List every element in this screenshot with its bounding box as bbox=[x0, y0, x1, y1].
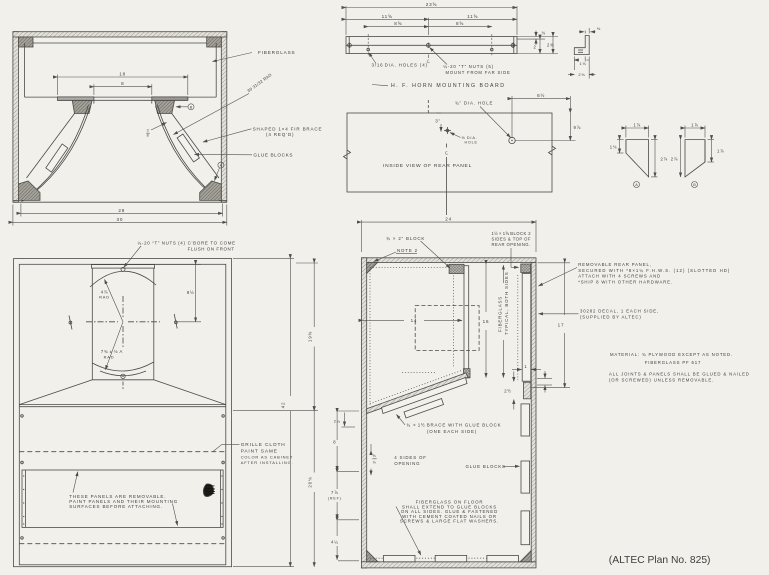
svg-text:1⅞: 1⅞ bbox=[717, 149, 725, 154]
svg-text:*SHIP 8 WITH OTHER HARDWARE.: *SHIP 8 WITH OTHER HARDWARE. bbox=[578, 279, 673, 284]
svg-text:(OR SCREWED) UNLESS REMOVABLE.: (OR SCREWED) UNLESS REMOVABLE. bbox=[609, 378, 714, 383]
svg-text:16: 16 bbox=[483, 319, 490, 324]
svg-text:REAR OPENING.: REAR OPENING. bbox=[492, 242, 531, 247]
svg-text:30282 DECAL, 1 EACH SIDE,: 30282 DECAL, 1 EACH SIDE, bbox=[580, 309, 659, 314]
svg-text:H. F. HORN MOUNTING BOARD: H. F. HORN MOUNTING BOARD bbox=[391, 83, 505, 89]
svg-text:1⅞: 1⅞ bbox=[691, 123, 699, 128]
svg-text:⅜: ⅜ bbox=[597, 26, 601, 31]
svg-text:GRILLE CLOTH: GRILLE CLOTH bbox=[241, 442, 286, 448]
svg-text:FIBERGLASS: FIBERGLASS bbox=[498, 296, 503, 332]
svg-text:(SUPPLIED BY ALTEC): (SUPPLIED BY ALTEC) bbox=[580, 314, 642, 319]
svg-text:FLUSH ON FRONT: FLUSH ON FRONT bbox=[188, 247, 235, 252]
svg-text:⅛: ⅛ bbox=[542, 31, 546, 36]
svg-text:¾ × 2” BLOCK: ¾ × 2” BLOCK bbox=[386, 236, 425, 241]
svg-text:MOUNT FROM FAR SIDE: MOUNT FROM FAR SIDE bbox=[446, 70, 511, 75]
svg-text:2⅜: 2⅜ bbox=[547, 43, 555, 48]
svg-text:8⅝: 8⅝ bbox=[456, 21, 464, 26]
svg-text:⅞: ⅞ bbox=[372, 461, 376, 465]
svg-text:4¼: 4¼ bbox=[331, 540, 339, 545]
svg-text:7⅞: 7⅞ bbox=[331, 490, 339, 495]
svg-text:SIDES & TOP OF: SIDES & TOP OF bbox=[492, 237, 531, 242]
svg-text:8: 8 bbox=[147, 134, 150, 138]
svg-text:½ DIA.: ½ DIA. bbox=[462, 135, 478, 140]
svg-text:4 SIDES OF: 4 SIDES OF bbox=[394, 455, 427, 460]
svg-text:1⅛: 1⅛ bbox=[579, 61, 586, 66]
svg-text:SECURED WITH *8×1¼ F.H.W.S. (1: SECURED WITH *8×1¼ F.H.W.S. (12) (SLOTTE… bbox=[578, 268, 730, 273]
svg-text:GLUE BLOCKS: GLUE BLOCKS bbox=[253, 153, 293, 158]
svg-text:1⅞: 1⅞ bbox=[633, 123, 641, 128]
svg-text:¼-20 “T” NUTS (4) C’BORE TO CO: ¼-20 “T” NUTS (4) C’BORE TO COME bbox=[138, 240, 236, 245]
svg-text:(4 REQ’D): (4 REQ’D) bbox=[266, 132, 294, 137]
svg-text:8⅝: 8⅝ bbox=[394, 21, 402, 26]
svg-text:28: 28 bbox=[118, 208, 125, 213]
svg-text:HOLE: HOLE bbox=[465, 141, 478, 145]
svg-text:1: 1 bbox=[524, 364, 527, 369]
svg-text:2: 2 bbox=[534, 45, 537, 50]
svg-text:FIBERGLASS: FIBERGLASS bbox=[258, 50, 295, 55]
svg-text:(REF): (REF) bbox=[328, 497, 342, 501]
svg-text:2⅞: 2⅞ bbox=[661, 157, 669, 162]
svg-text:17: 17 bbox=[558, 323, 565, 328]
svg-text:B: B bbox=[693, 183, 696, 187]
svg-text:¾ × 1½ BRACE WITH GLUE BLOCK: ¾ × 1½ BRACE WITH GLUE BLOCK bbox=[407, 423, 502, 428]
svg-text:2⅛: 2⅛ bbox=[578, 72, 585, 77]
svg-text:REMOVABLE REAR PANEL,: REMOVABLE REAR PANEL, bbox=[578, 262, 652, 267]
svg-text:A: A bbox=[220, 164, 223, 168]
svg-text:A: A bbox=[635, 183, 638, 187]
svg-text:18: 18 bbox=[119, 71, 126, 76]
svg-text:19⅜: 19⅜ bbox=[308, 331, 313, 342]
svg-text:¼-20 “T” NUTS (5): ¼-20 “T” NUTS (5) bbox=[443, 64, 494, 69]
svg-text:B: B bbox=[190, 105, 193, 109]
svg-text:6½: 6½ bbox=[537, 92, 545, 98]
svg-text:ATTACH WITH 4 SCREWS AND: ATTACH WITH 4 SCREWS AND bbox=[578, 274, 661, 279]
svg-text:SCREWS & LARGE FLAT WASHERS.: SCREWS & LARGE FLAT WASHERS. bbox=[400, 519, 499, 524]
svg-text:7¾ ± ⅛ A: 7¾ ± ⅛ A bbox=[101, 349, 123, 354]
svg-text:INSIDE VIEW OF REAR PANEL: INSIDE VIEW OF REAR PANEL bbox=[383, 163, 472, 169]
svg-text:AFTER INSTALLING.: AFTER INSTALLING. bbox=[241, 460, 294, 465]
svg-text:NOTE 2: NOTE 2 bbox=[397, 248, 418, 253]
svg-text:30: 30 bbox=[116, 217, 123, 222]
svg-text:​3/16 DIA. HOLES (4): ​3/16 DIA. HOLES (4) bbox=[372, 63, 428, 68]
svg-text:TYPICAL, BOTH SIDES: TYPICAL, BOTH SIDES bbox=[504, 272, 509, 335]
svg-text:¾” DIA. HOLE: ¾” DIA. HOLE bbox=[455, 101, 493, 106]
svg-text:11⅝: 11⅝ bbox=[382, 14, 393, 19]
svg-text:(ALTEC Plan No. 825): (ALTEC Plan No. 825) bbox=[609, 555, 711, 566]
svg-text:42: 42 bbox=[280, 402, 285, 409]
svg-text:14: 14 bbox=[411, 318, 418, 323]
svg-text:GLUE BLOCKS: GLUE BLOCKS bbox=[466, 464, 506, 469]
svg-text:3: 3 bbox=[147, 129, 150, 133]
svg-text:8½: 8½ bbox=[187, 290, 195, 295]
svg-text:⅝: ⅝ bbox=[372, 454, 376, 458]
svg-text:2½: 2½ bbox=[504, 389, 512, 394]
svg-text:RAD: RAD bbox=[104, 354, 115, 359]
svg-text:20⅛: 20⅛ bbox=[308, 476, 313, 487]
svg-text:COLOR AS CABINET: COLOR AS CABINET bbox=[241, 455, 294, 460]
svg-text:2⅞: 2⅞ bbox=[671, 157, 679, 162]
svg-text:1½ × 1⅝ BLOCK 2: 1½ × 1⅝ BLOCK 2 bbox=[492, 231, 532, 236]
svg-text:24: 24 bbox=[445, 217, 452, 222]
svg-text:SURFACES BEFORE ATTACHING.: SURFACES BEFORE ATTACHING. bbox=[69, 504, 163, 509]
svg-text:FIBERGLASS PF 617: FIBERGLASS PF 617 bbox=[645, 360, 701, 365]
svg-text:3”: 3” bbox=[435, 119, 441, 124]
svg-text:MATERIAL: ¾ PLYWOOD EXCEPT AS: MATERIAL: ¾ PLYWOOD EXCEPT AS NOTED. bbox=[610, 352, 733, 357]
svg-text:OPENING: OPENING bbox=[394, 461, 420, 466]
svg-text:11⅝: 11⅝ bbox=[467, 14, 478, 19]
svg-text:(ONE EACH SIDE): (ONE EACH SIDE) bbox=[427, 429, 477, 434]
svg-text:23⅝: 23⅝ bbox=[426, 2, 438, 7]
svg-text:ALL JOINTS & PANELS SHALL BE G: ALL JOINTS & PANELS SHALL BE GLUED & NAI… bbox=[609, 372, 750, 377]
svg-text:RAD: RAD bbox=[99, 295, 110, 300]
svg-text:SHAPED 1×4 FIR BRACE: SHAPED 1×4 FIR BRACE bbox=[253, 126, 323, 131]
svg-text:8: 8 bbox=[333, 440, 336, 445]
svg-text:1⅛: 1⅛ bbox=[610, 145, 618, 150]
svg-text:9⅞: 9⅞ bbox=[574, 125, 582, 130]
svg-text:8: 8 bbox=[121, 81, 124, 86]
